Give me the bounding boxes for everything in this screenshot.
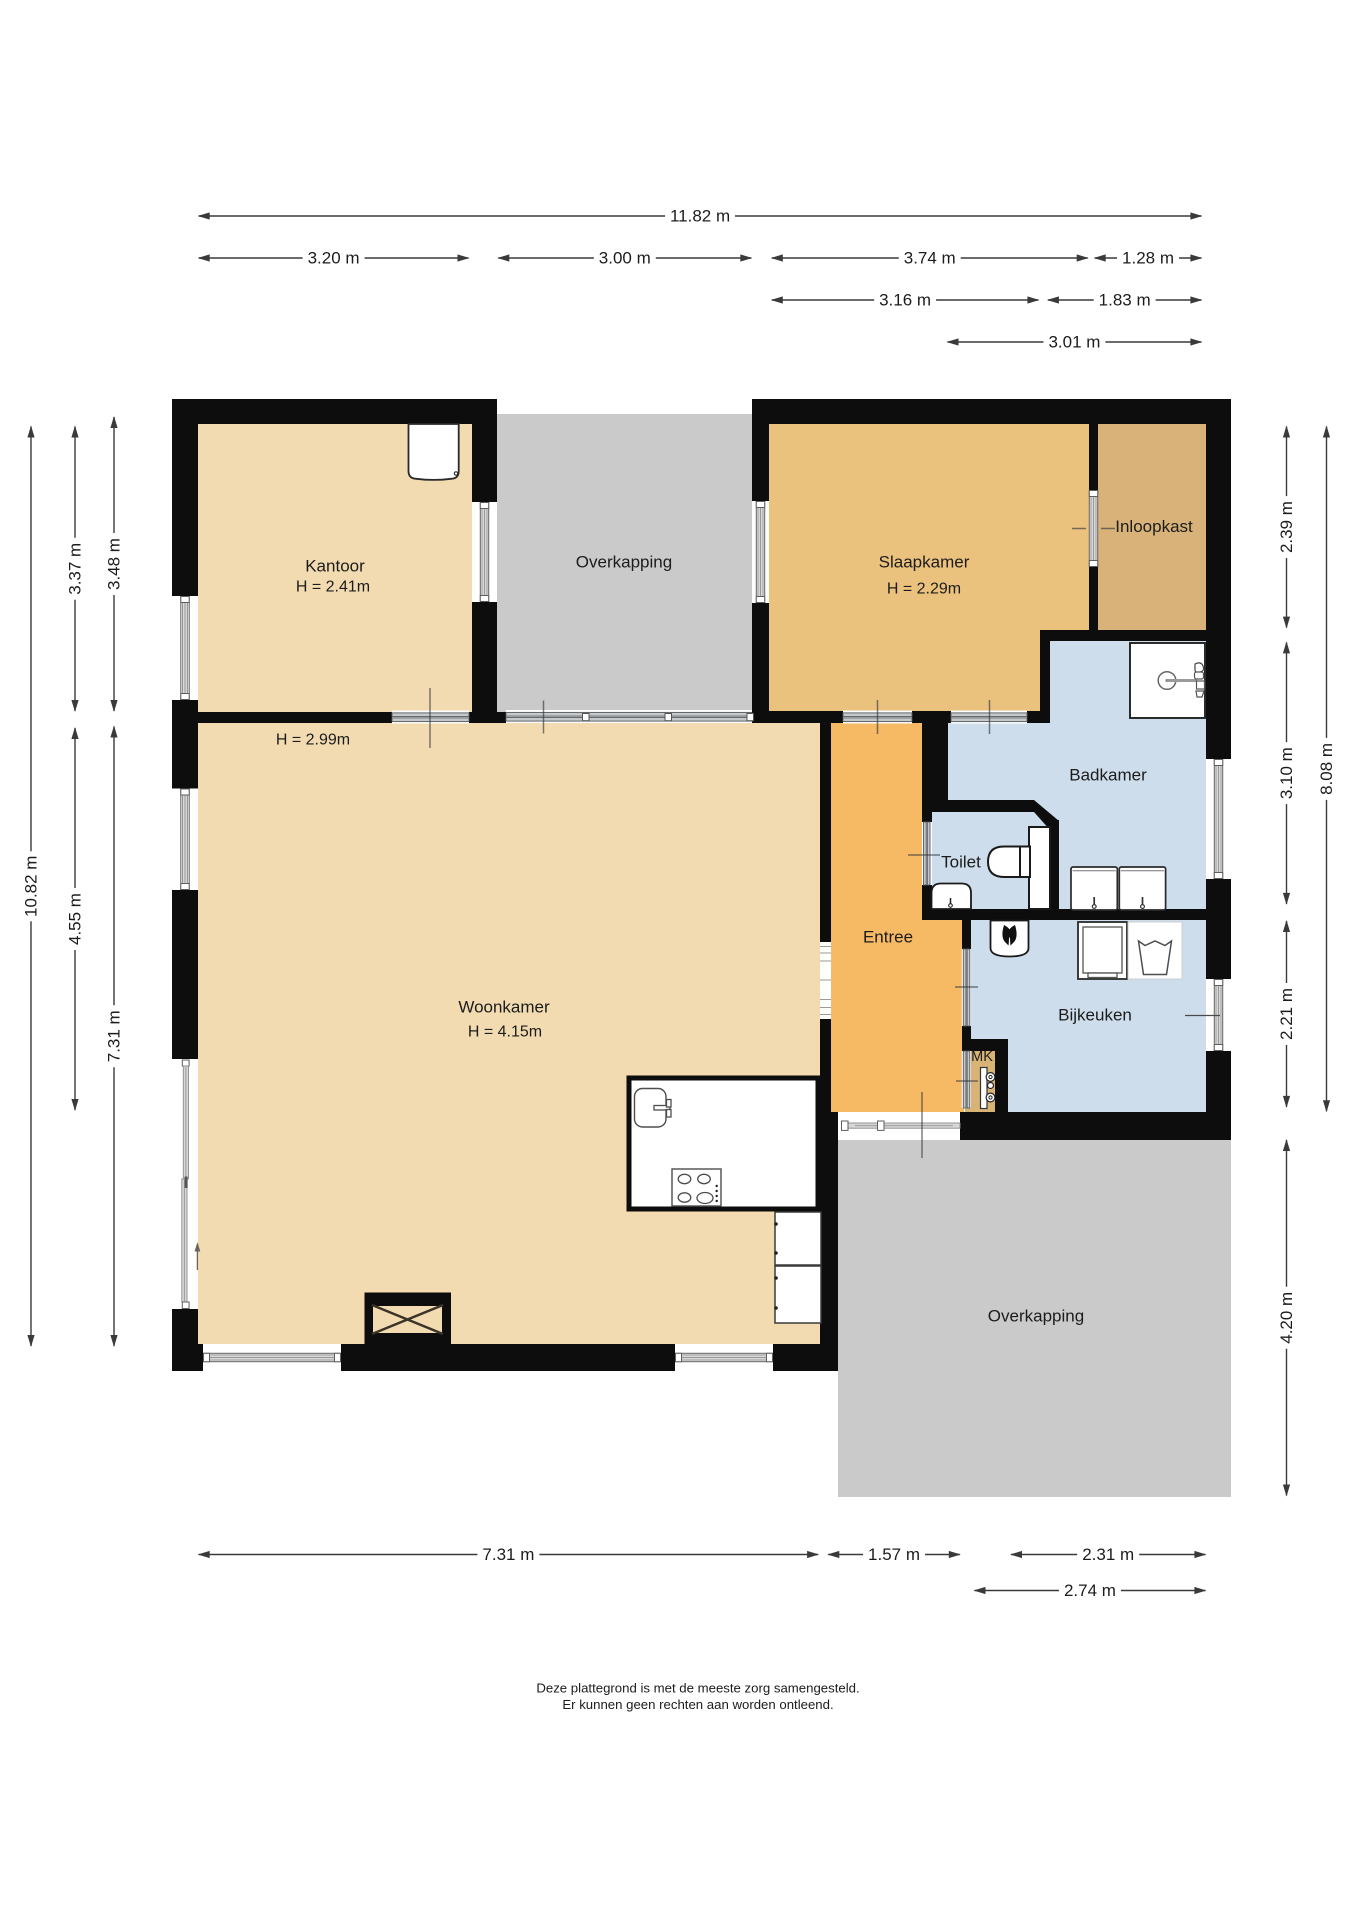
svg-text:2.39 m: 2.39 m bbox=[1277, 501, 1296, 553]
svg-text:2.31 m: 2.31 m bbox=[1082, 1545, 1134, 1564]
svg-text:3.00 m: 3.00 m bbox=[599, 249, 651, 268]
svg-text:4.55 m: 4.55 m bbox=[66, 893, 85, 945]
svg-text:3.20 m: 3.20 m bbox=[308, 249, 360, 268]
svg-text:3.37 m: 3.37 m bbox=[66, 543, 85, 595]
svg-text:11.82 m: 11.82 m bbox=[670, 207, 730, 226]
svg-text:3.10 m: 3.10 m bbox=[1277, 747, 1296, 799]
svg-text:1.28 m: 1.28 m bbox=[1122, 249, 1174, 268]
svg-text:Slaapkamer: Slaapkamer bbox=[879, 553, 970, 572]
svg-text:Kantoor: Kantoor bbox=[305, 557, 365, 576]
svg-text:1.83 m: 1.83 m bbox=[1099, 291, 1151, 310]
svg-text:Deze plattegrond is met de mee: Deze plattegrond is met de meeste zorg s… bbox=[536, 1681, 859, 1696]
svg-text:H = 4.15m: H = 4.15m bbox=[468, 1024, 542, 1041]
svg-text:H = 2.29m: H = 2.29m bbox=[887, 581, 961, 598]
svg-text:7.31 m: 7.31 m bbox=[105, 1010, 124, 1062]
svg-text:Woonkamer: Woonkamer bbox=[458, 998, 550, 1017]
svg-text:Toilet: Toilet bbox=[941, 853, 981, 872]
svg-text:Overkapping: Overkapping bbox=[576, 553, 672, 572]
svg-text:7.31 m: 7.31 m bbox=[482, 1545, 534, 1564]
svg-text:4.20 m: 4.20 m bbox=[1277, 1292, 1296, 1344]
svg-text:3.48 m: 3.48 m bbox=[105, 538, 124, 590]
svg-text:1.57 m: 1.57 m bbox=[868, 1545, 920, 1564]
svg-text:MK: MK bbox=[971, 1049, 993, 1065]
svg-text:H = 2.41m: H = 2.41m bbox=[296, 579, 370, 596]
svg-text:Entree: Entree bbox=[863, 928, 913, 947]
svg-text:3.74 m: 3.74 m bbox=[904, 249, 956, 268]
svg-text:8.08 m: 8.08 m bbox=[1317, 743, 1336, 795]
svg-text:Er kunnen geen rechten aan wor: Er kunnen geen rechten aan worden ontlee… bbox=[562, 1697, 833, 1712]
svg-text:10.82 m: 10.82 m bbox=[22, 856, 41, 917]
svg-text:Inloopkast: Inloopkast bbox=[1115, 517, 1193, 536]
svg-text:3.16 m: 3.16 m bbox=[879, 291, 931, 310]
svg-text:2.21 m: 2.21 m bbox=[1277, 988, 1296, 1040]
svg-text:2.74 m: 2.74 m bbox=[1064, 1581, 1116, 1600]
svg-text:H = 2.99m: H = 2.99m bbox=[276, 732, 350, 749]
svg-text:Overkapping: Overkapping bbox=[988, 1307, 1084, 1326]
svg-text:3.01 m: 3.01 m bbox=[1048, 333, 1100, 352]
svg-text:Badkamer: Badkamer bbox=[1069, 766, 1147, 785]
svg-text:Bijkeuken: Bijkeuken bbox=[1058, 1006, 1132, 1025]
